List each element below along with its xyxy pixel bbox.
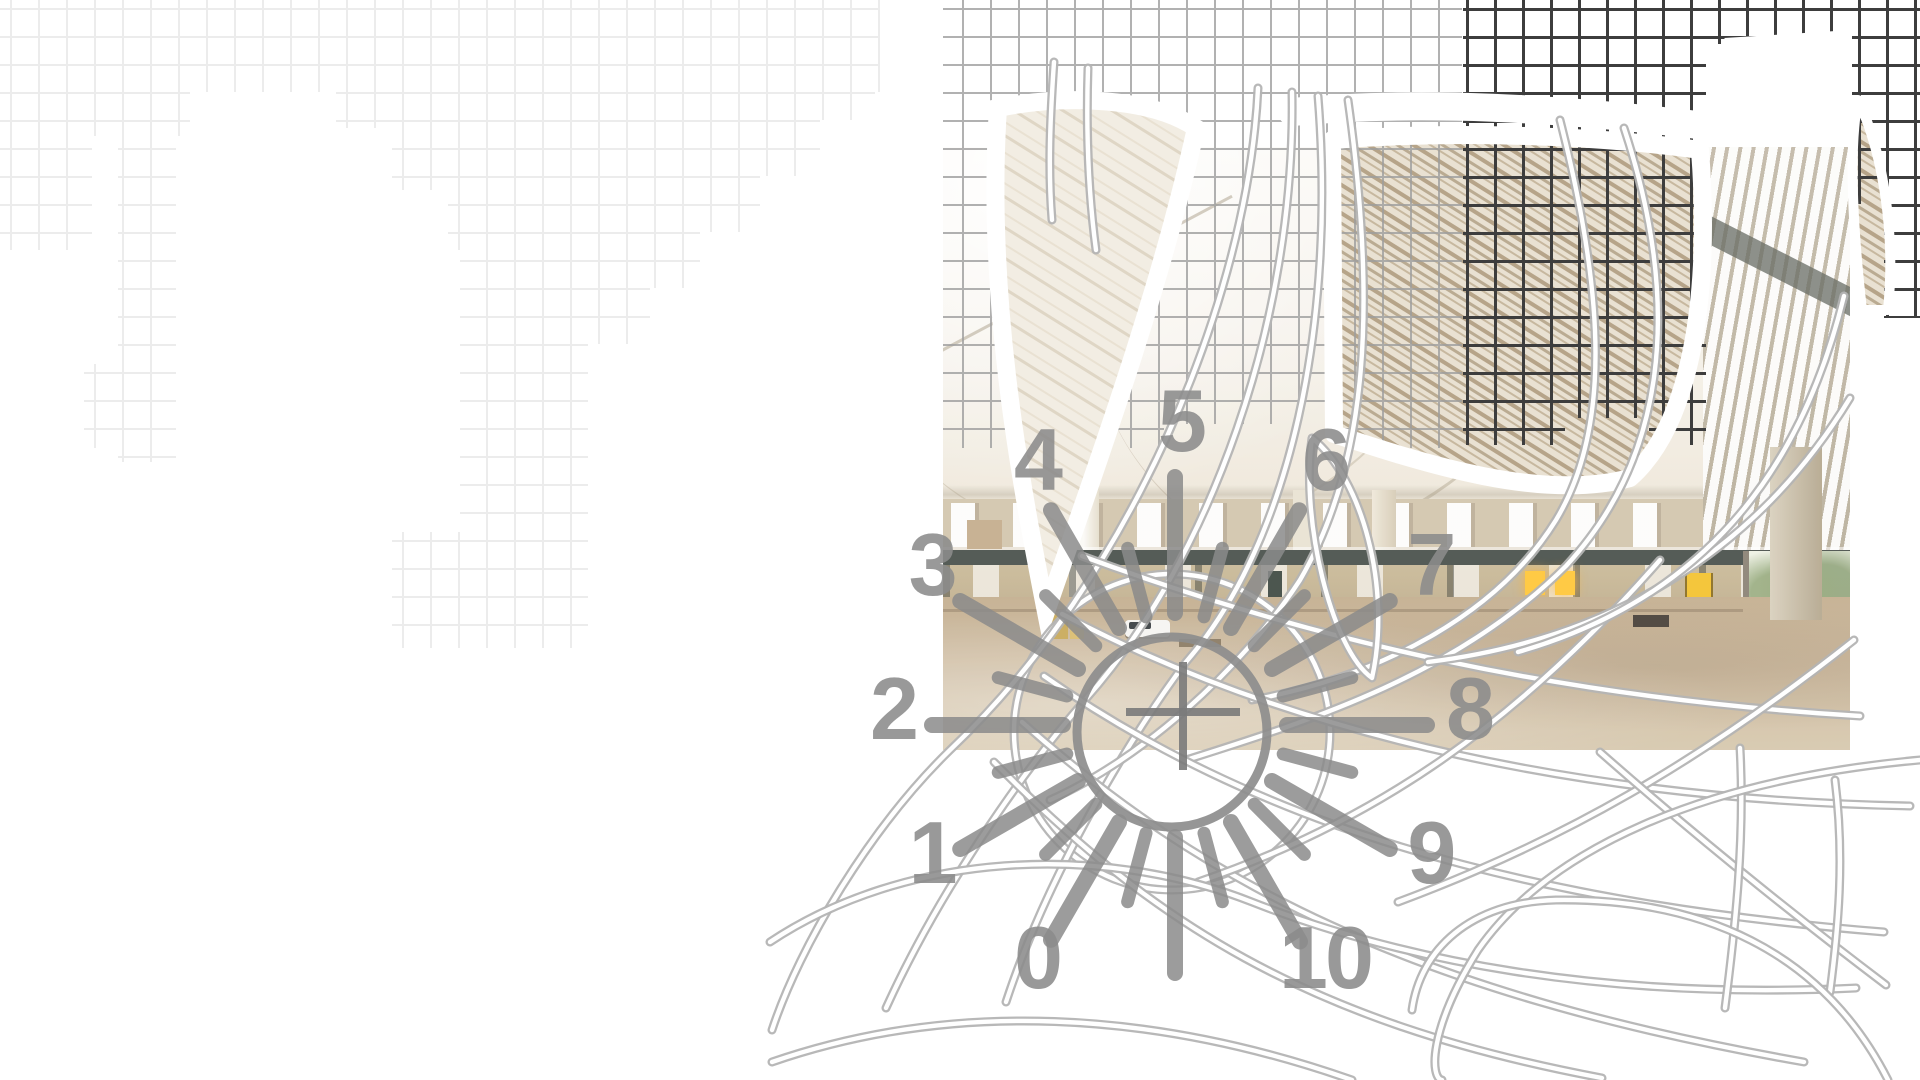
vein-line [994, 762, 1602, 1078]
petal-top-border-band [1292, 106, 1706, 126]
vein-line [1725, 748, 1741, 1008]
gauge-tick [1128, 833, 1146, 902]
gauge-tick [1272, 781, 1390, 849]
warehouse-photo [943, 147, 1850, 750]
gauge-number-0: 0 [1014, 915, 1060, 1003]
vein-line [770, 864, 1856, 990]
gauge-tick [1283, 754, 1352, 772]
gauge-number-9: 9 [1407, 809, 1453, 897]
gauge-tick [1254, 804, 1304, 854]
gauge-tick [1051, 822, 1119, 940]
vein-line [770, 864, 1856, 990]
vein-line [1412, 900, 1888, 1080]
vein-line [1830, 780, 1840, 992]
art-collage-canvas: 012345678910 [0, 0, 1920, 1080]
vein-line [1725, 748, 1741, 1008]
vein-line [1600, 752, 1886, 985]
photo-soft-overlay [943, 147, 1850, 750]
vein-line [1830, 780, 1840, 992]
gauge-tick [1231, 822, 1300, 942]
gauge-number-1: 1 [909, 809, 955, 897]
vein-line [772, 1021, 1352, 1080]
vein-line [1022, 722, 1804, 1062]
vein-line [1412, 900, 1888, 1080]
gauge-number-2: 2 [870, 665, 916, 753]
vein-line [1435, 760, 1920, 1080]
vein-line [1022, 722, 1804, 1062]
petal-sliver-fill [1852, 100, 1890, 310]
vein-line [1435, 760, 1920, 1080]
gauge-tick [960, 781, 1078, 849]
gauge-tick [1046, 804, 1096, 854]
vein-line [1600, 752, 1886, 985]
vein-line [772, 1021, 1352, 1080]
white-wedge [1724, 30, 1852, 122]
gauge-tick [998, 754, 1067, 772]
vein-line [994, 762, 1602, 1078]
gauge-tick [1204, 833, 1222, 902]
petal-sliver-border [1852, 100, 1890, 310]
gauge-number-10: 10 [1279, 915, 1371, 1003]
